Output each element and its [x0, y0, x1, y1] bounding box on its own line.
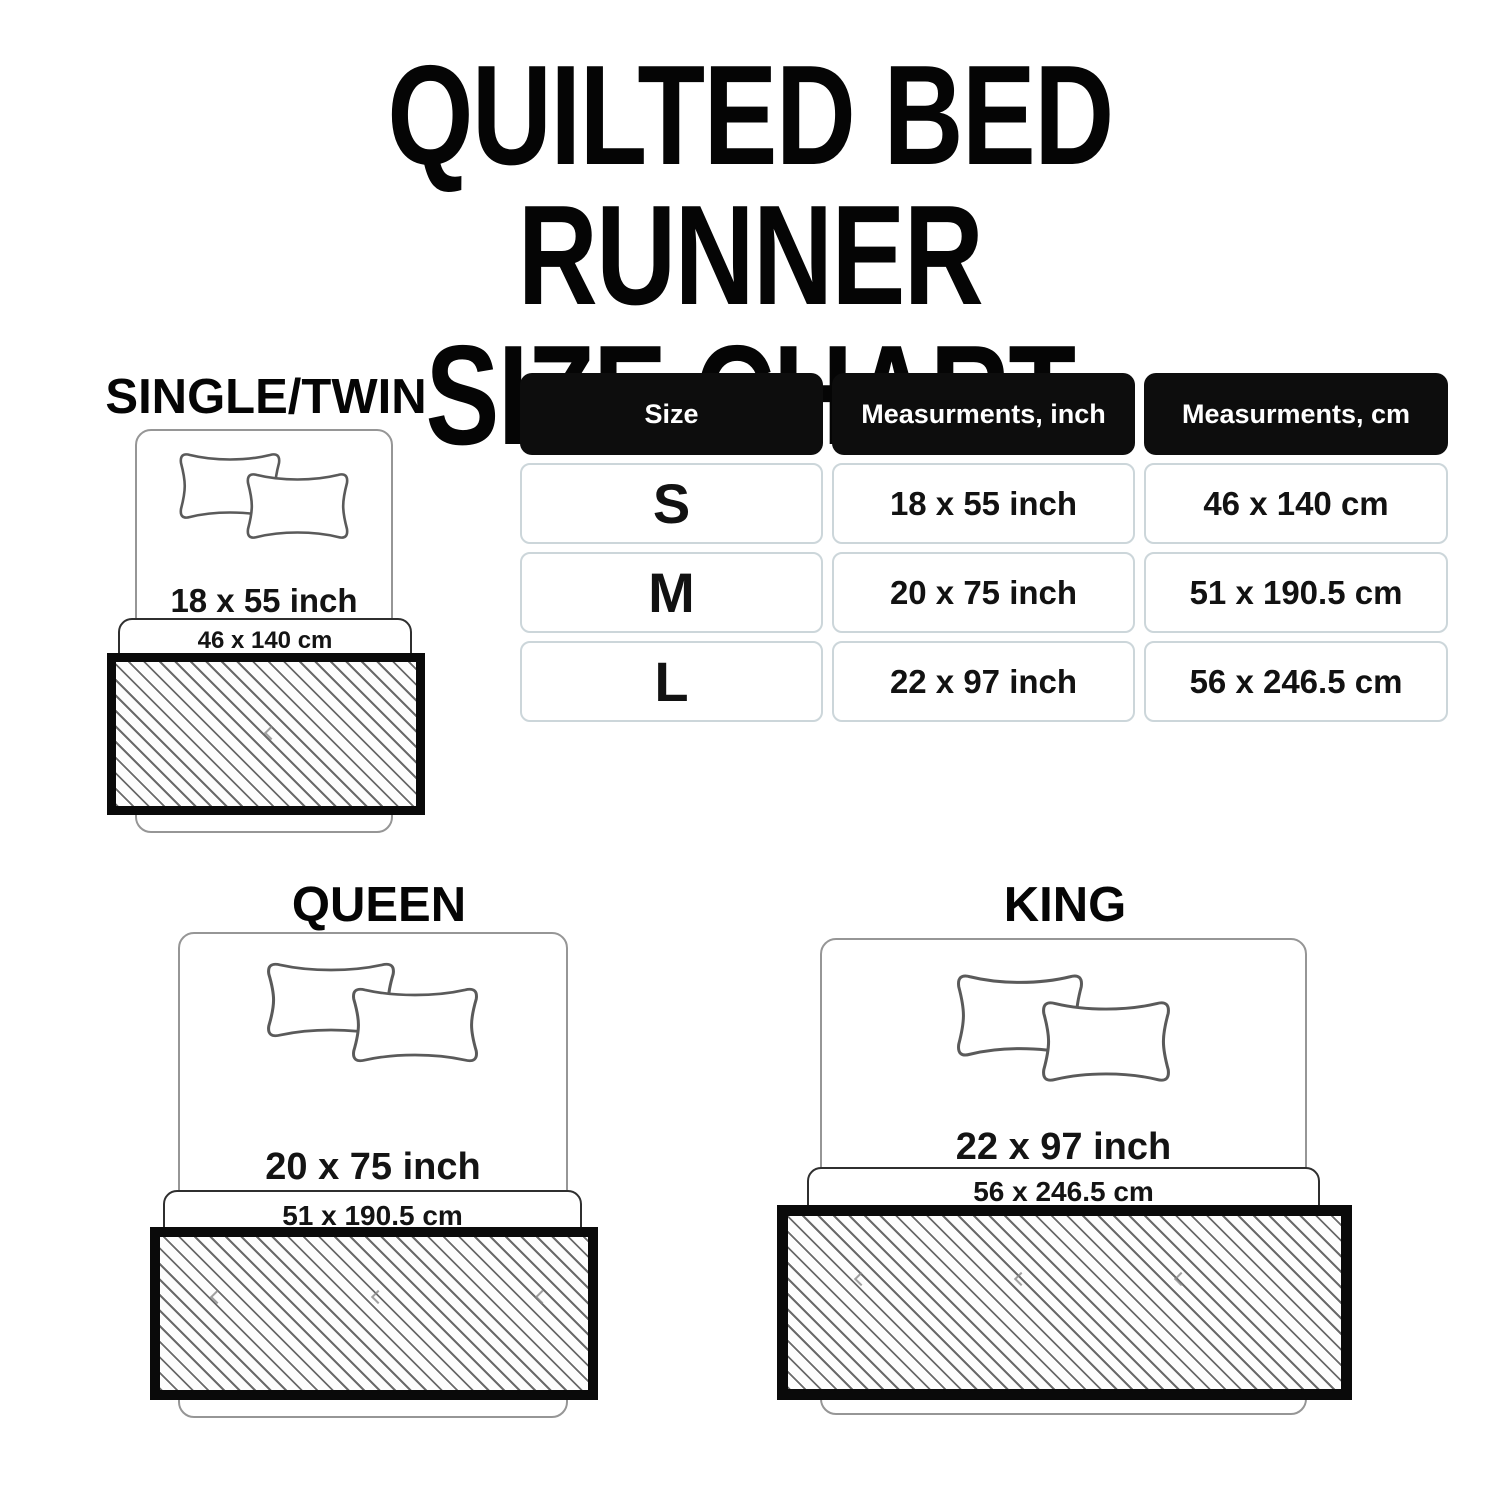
- table-cell-cm-s: 46 x 140 cm: [1144, 463, 1448, 544]
- table-cell-size-l: L: [520, 641, 823, 722]
- table-header-inch: Measurments, inch: [832, 373, 1135, 455]
- size-label-cm: 46 x 140 cm: [198, 627, 333, 654]
- stitch-mark: [371, 1290, 385, 1304]
- size-label-inch: 20 x 75 inch: [178, 1146, 568, 1189]
- table-header-size: Size: [520, 373, 823, 455]
- table-cell-inch-s: 18 x 55 inch: [832, 463, 1135, 544]
- diagram-queen-label: QUEEN: [148, 880, 610, 930]
- table-cell-inch-m: 20 x 75 inch: [832, 552, 1135, 633]
- stitch-mark: [210, 1290, 224, 1304]
- stitch-mark: [264, 726, 278, 740]
- diagram-king: KING 22 x 97 inch 56 x 246.5 cm: [770, 880, 1360, 1440]
- runner-swatch: [150, 1227, 598, 1400]
- runner-swatch: [777, 1205, 1352, 1400]
- pillow-icon: [350, 982, 480, 1068]
- table-header-cm: Measurments, cm: [1144, 373, 1448, 455]
- table-cell-size-m: M: [520, 552, 823, 633]
- size-label-cm: 56 x 246.5 cm: [973, 1176, 1154, 1207]
- pillow-icon: [1040, 995, 1172, 1088]
- pillow-icon: [245, 468, 350, 544]
- runner-swatch: [107, 653, 425, 815]
- stitch-mark: [854, 1272, 868, 1286]
- size-label-inch: 22 x 97 inch: [820, 1126, 1307, 1169]
- diagram-single-twin-label: SINGLE/TWIN: [100, 372, 432, 422]
- stitch-mark: [1174, 1272, 1188, 1286]
- table-cell-cm-m: 51 x 190.5 cm: [1144, 552, 1448, 633]
- diagram-queen: QUEEN 20 x 75 inch 51 x 190.5 cm: [148, 880, 610, 1440]
- table-cell-size-s: S: [520, 463, 823, 544]
- diagram-king-label: KING: [770, 880, 1360, 930]
- diagram-single-twin: SINGLE/TWIN 18 x 55 inch 46 x 140 cm: [100, 372, 432, 842]
- stitch-mark: [535, 1290, 549, 1304]
- stitch-mark: [1014, 1272, 1028, 1286]
- size-label-inch: 18 x 55 inch: [135, 582, 393, 620]
- size-table: Size Measurments, inch Measurments, cm S…: [520, 373, 1448, 722]
- table-cell-inch-l: 22 x 97 inch: [832, 641, 1135, 722]
- table-cell-cm-l: 56 x 246.5 cm: [1144, 641, 1448, 722]
